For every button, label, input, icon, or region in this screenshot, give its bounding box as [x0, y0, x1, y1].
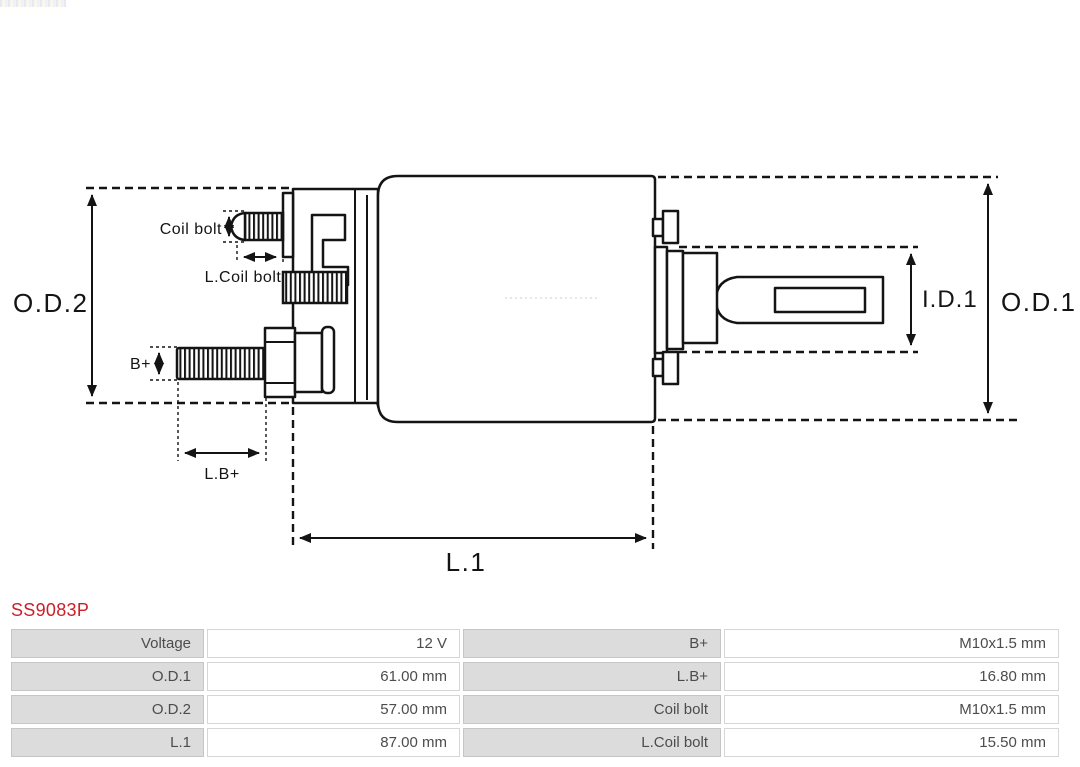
product-drawing-page: { "product": { "code": "SS9083P" }, "dia… [0, 0, 1080, 767]
lb-plus-label: L.B+ [204, 466, 239, 483]
dimension-l-coil-bolt: L.Coil bolt [205, 241, 283, 286]
coil-bolt-thread [245, 213, 283, 240]
spec-value-cell: 57.00 mm [207, 695, 460, 724]
b-plus-stud-thread [177, 348, 265, 379]
od2-label: O.D.2 [13, 288, 88, 318]
solenoid-technical-drawing: O.D.2 O.D.1 I.D.1 L.1 L.B+ B+ [0, 0, 1080, 595]
l1-label: L.1 [446, 547, 487, 577]
spec-row: L.1 87.00 mm L.Coil bolt 15.50 mm [11, 728, 1059, 757]
product-code-title: SS9083P [11, 600, 89, 621]
spec-label-cell: Voltage [11, 629, 204, 658]
spec-label-cell: L.1 [11, 728, 204, 757]
b-plus-nut [265, 328, 295, 397]
spec-label-cell: L.Coil bolt [463, 728, 721, 757]
spec-row: O.D.1 61.00 mm L.B+ 16.80 mm [11, 662, 1059, 691]
id1-label: I.D.1 [922, 286, 978, 313]
spec-label-cell: O.D.1 [11, 662, 204, 691]
dimension-lb-plus: L.B+ [178, 382, 266, 483]
l-coil-bolt-label: L.Coil bolt [205, 269, 282, 286]
spec-value-cell: 15.50 mm [724, 728, 1059, 757]
spec-row: Voltage 12 V B+ M10x1.5 mm [11, 629, 1059, 658]
coil-bolt-label: Coil bolt [160, 221, 222, 238]
solenoid-body [378, 176, 655, 422]
od1-label: O.D.1 [1001, 287, 1076, 317]
spec-value-cell: M10x1.5 mm [724, 629, 1059, 658]
b-plus-terminal [177, 327, 334, 397]
spec-label-cell: Coil bolt [463, 695, 721, 724]
b-plus-label: B+ [130, 356, 151, 373]
coil-bolt-tip [231, 213, 245, 240]
shaft-slot [775, 288, 865, 312]
spec-row: O.D.2 57.00 mm Coil bolt M10x1.5 mm [11, 695, 1059, 724]
dimension-b-plus: B+ [130, 347, 177, 380]
plunger-assembly [655, 247, 883, 353]
b-plus-washer [322, 327, 334, 393]
spec-label-cell: O.D.2 [11, 695, 204, 724]
spec-value-cell: 16.80 mm [724, 662, 1059, 691]
spec-value-cell: 12 V [207, 629, 460, 658]
spec-value-cell: M10x1.5 mm [724, 695, 1059, 724]
spec-value-cell: 87.00 mm [207, 728, 460, 757]
spec-value-cell: 61.00 mm [207, 662, 460, 691]
dimension-l1: L.1 [293, 407, 653, 577]
spec-label-cell: B+ [463, 629, 721, 658]
spec-label-cell: L.B+ [463, 662, 721, 691]
coil-thread-collar [283, 272, 347, 303]
spec-table: Voltage 12 V B+ M10x1.5 mm O.D.1 61.00 m… [8, 625, 1062, 761]
